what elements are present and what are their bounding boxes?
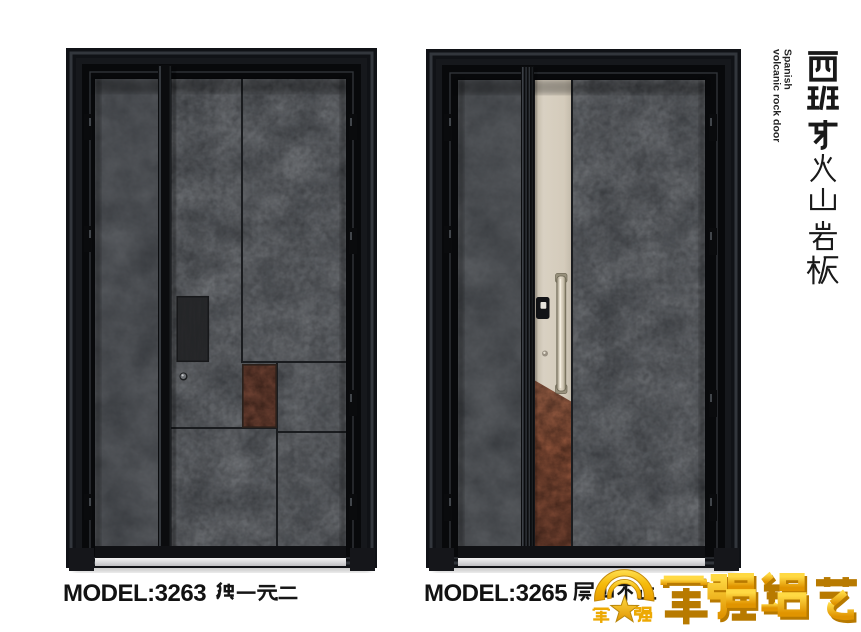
svg-text:MODEL:3263: MODEL:3263 xyxy=(63,580,206,607)
svg-text:MODEL:3265: MODEL:3265 xyxy=(424,580,567,607)
svg-text:volcanic rock door: volcanic rock door xyxy=(771,49,783,142)
